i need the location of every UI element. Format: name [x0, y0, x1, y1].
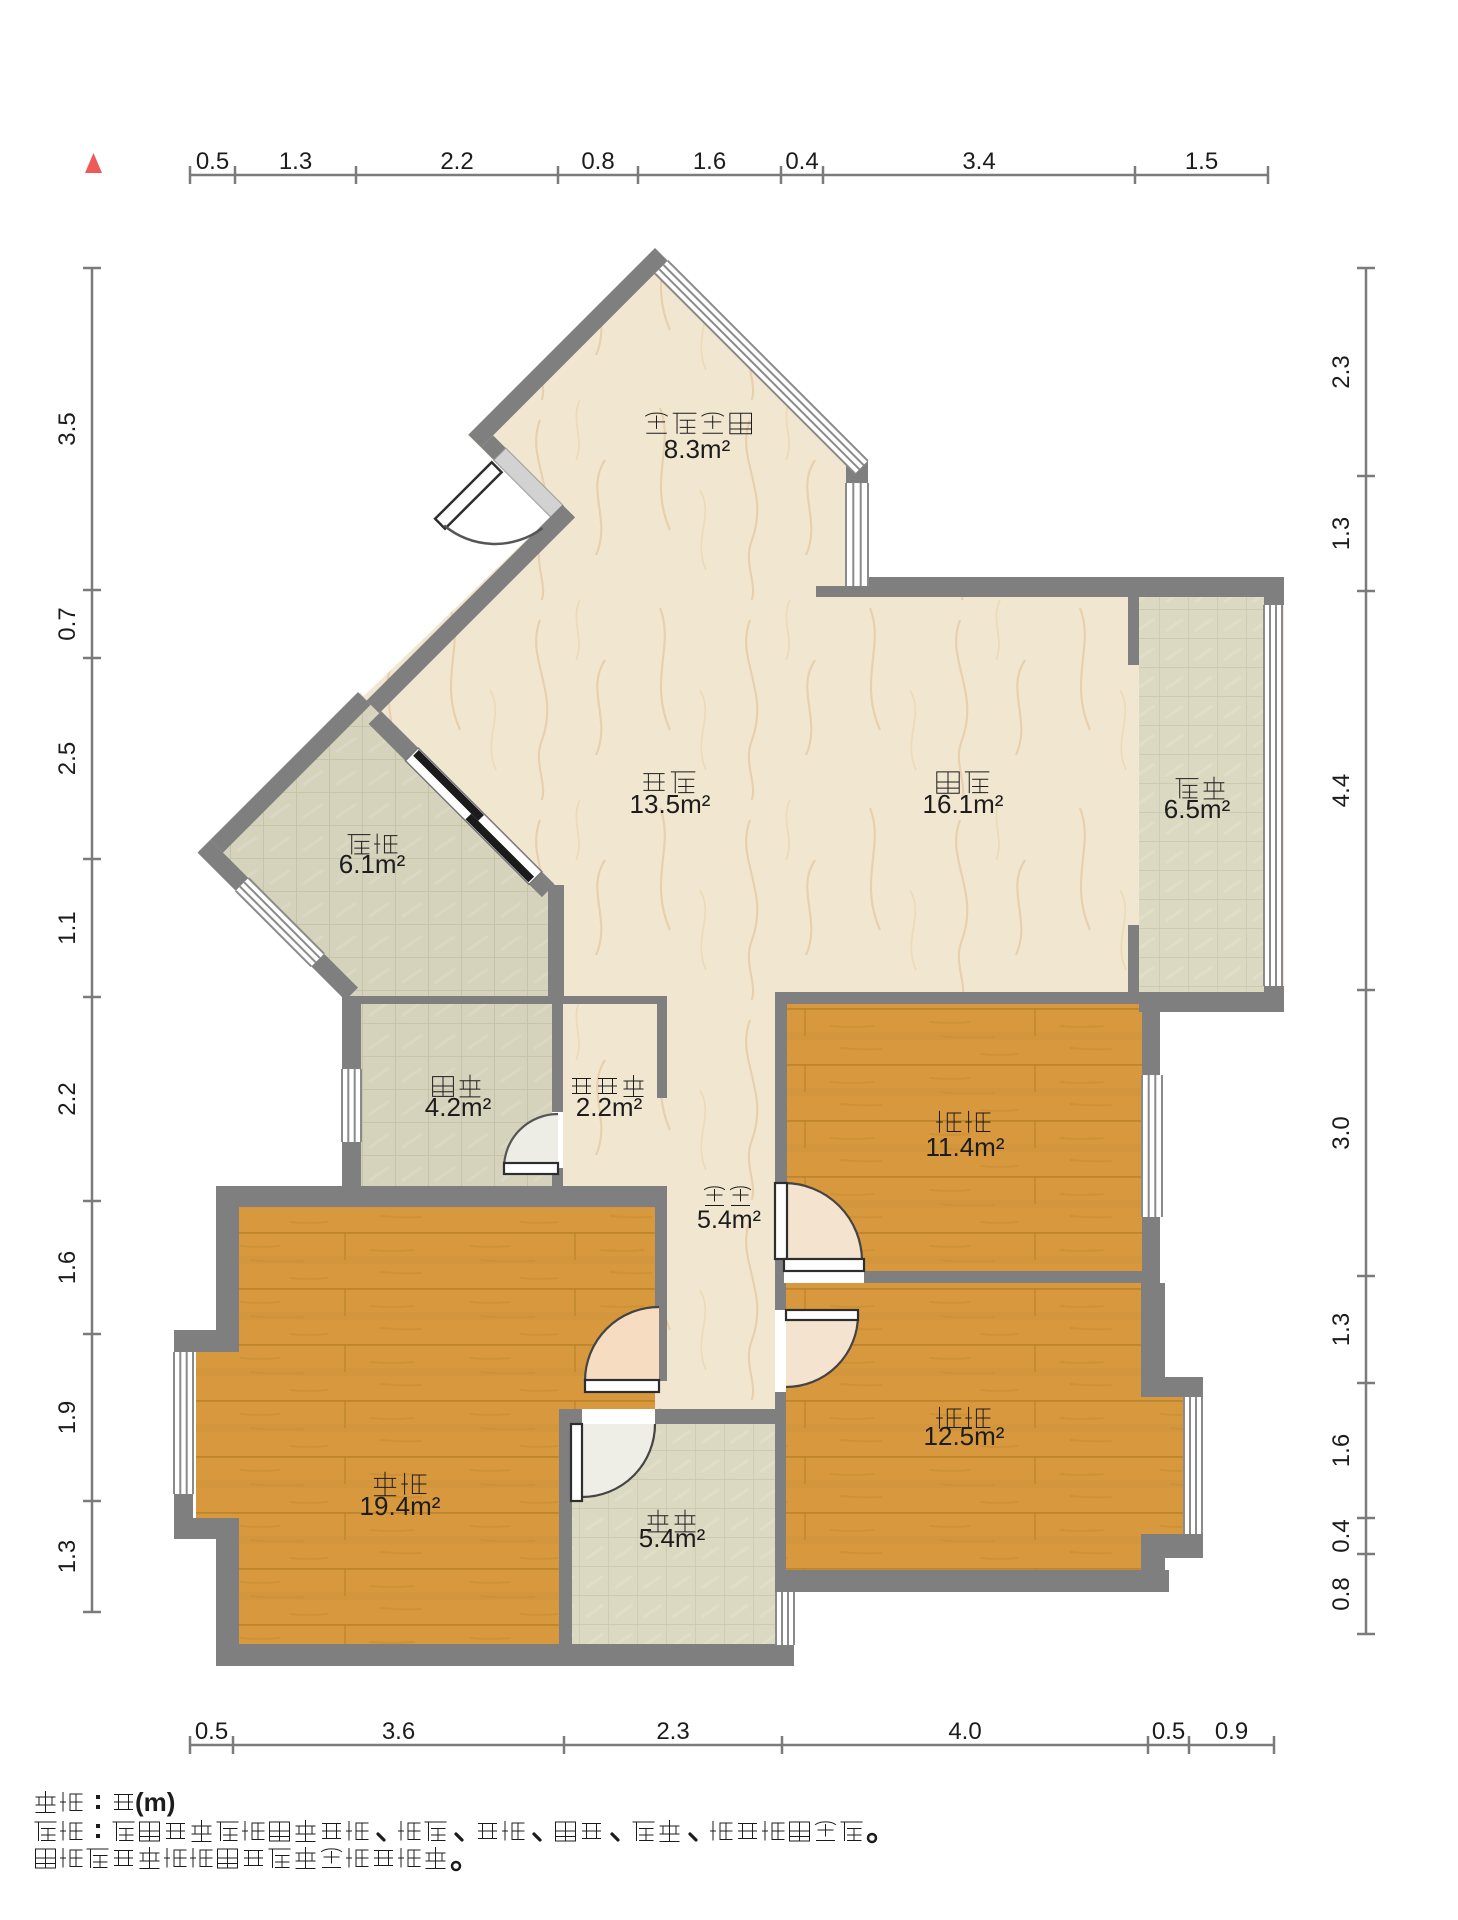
svg-text:3.0: 3.0 — [1328, 1116, 1355, 1149]
svg-text:2.5: 2.5 — [54, 742, 81, 775]
svg-text:3.4: 3.4 — [962, 148, 995, 175]
svg-text:11.4m²: 11.4m² — [926, 1132, 1005, 1162]
svg-text:12.5m²: 12.5m² — [924, 1421, 1005, 1451]
svg-text:0.5: 0.5 — [195, 1718, 228, 1745]
svg-text:5.4m²: 5.4m² — [639, 1523, 706, 1553]
svg-text:4.0: 4.0 — [948, 1718, 981, 1745]
svg-text:(m): (m) — [135, 1787, 175, 1817]
svg-text:16.1m²: 16.1m² — [923, 789, 1004, 819]
svg-text:1.5: 1.5 — [1185, 148, 1218, 175]
svg-text:1.6: 1.6 — [54, 1251, 81, 1284]
svg-text:1.9: 1.9 — [54, 1401, 81, 1434]
svg-text:2.3: 2.3 — [1328, 355, 1355, 388]
svg-text:0.4: 0.4 — [1328, 1519, 1355, 1552]
svg-text:0.8: 0.8 — [581, 148, 614, 175]
svg-text:0.4: 0.4 — [785, 148, 818, 175]
svg-text:0.8: 0.8 — [1328, 1577, 1355, 1610]
svg-text:13.5m²: 13.5m² — [630, 789, 711, 819]
svg-text:1.3: 1.3 — [1328, 517, 1355, 550]
svg-text:1.6: 1.6 — [1328, 1434, 1355, 1467]
svg-text:4.2m²: 4.2m² — [425, 1092, 492, 1122]
svg-text:0.7: 0.7 — [54, 607, 81, 640]
svg-text:2.2: 2.2 — [440, 148, 473, 175]
svg-text:1.6: 1.6 — [693, 148, 726, 175]
svg-text:2.2m²: 2.2m² — [576, 1092, 643, 1122]
svg-text:8.3m²: 8.3m² — [664, 434, 731, 464]
svg-text:6.1m²: 6.1m² — [339, 849, 406, 879]
svg-text:3.5: 3.5 — [54, 412, 81, 445]
svg-text:6.5m²: 6.5m² — [1164, 794, 1231, 824]
svg-text:0.5: 0.5 — [196, 148, 229, 175]
svg-text:1.1: 1.1 — [54, 911, 81, 944]
svg-text:5.4m²: 5.4m² — [697, 1206, 761, 1234]
svg-text:4.4: 4.4 — [1328, 774, 1355, 807]
svg-text:0.9: 0.9 — [1215, 1718, 1248, 1745]
svg-text:1.3: 1.3 — [279, 148, 312, 175]
svg-text:2.2: 2.2 — [54, 1082, 81, 1115]
svg-text:2.3: 2.3 — [656, 1718, 689, 1745]
svg-text:1.3: 1.3 — [54, 1540, 81, 1573]
svg-text:3.6: 3.6 — [382, 1718, 415, 1745]
svg-text:0.5: 0.5 — [1152, 1718, 1185, 1745]
svg-text:1.3: 1.3 — [1328, 1313, 1355, 1346]
svg-text:19.4m²: 19.4m² — [360, 1491, 441, 1521]
